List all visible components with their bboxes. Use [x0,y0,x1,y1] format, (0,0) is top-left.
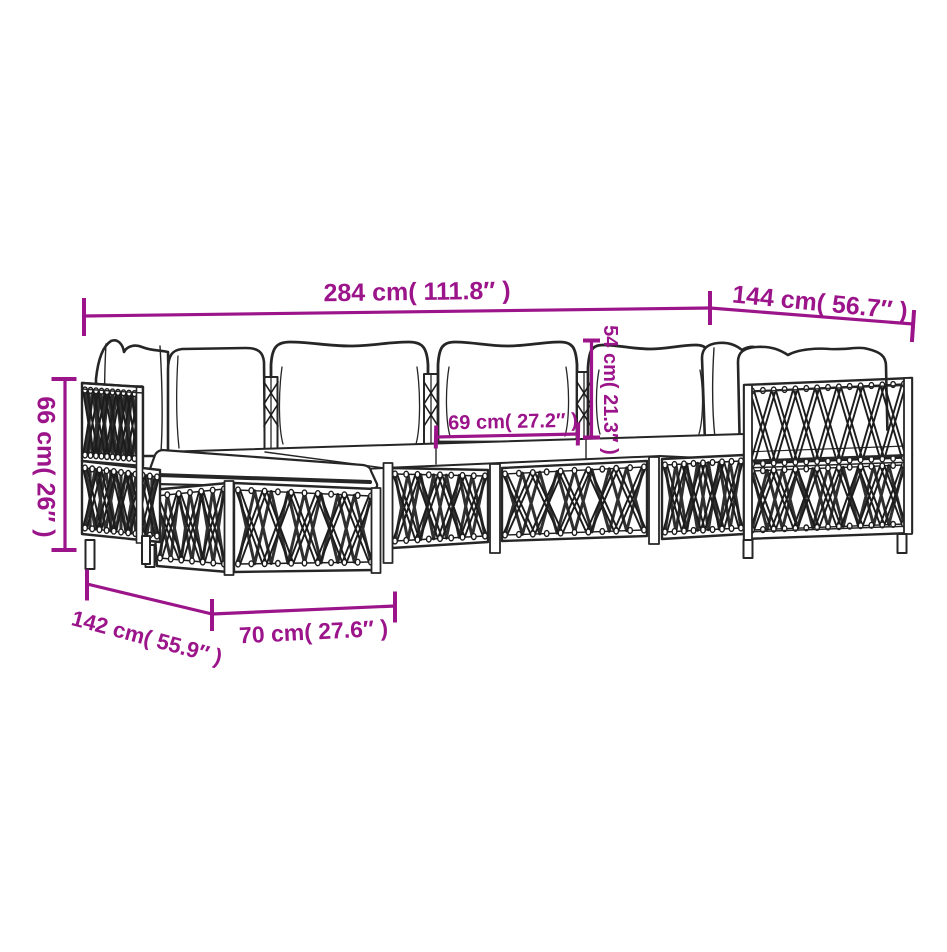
svg-text:54 cm( 21.3″ ): 54 cm( 21.3″ ) [599,325,621,455]
svg-text:69 cm( 27.2″ ): 69 cm( 27.2″ ) [448,410,578,435]
svg-text:284 cm( 111.8″ ): 284 cm( 111.8″ ) [323,277,510,308]
svg-text:66 cm( 26″ ): 66 cm( 26″ ) [32,396,60,537]
